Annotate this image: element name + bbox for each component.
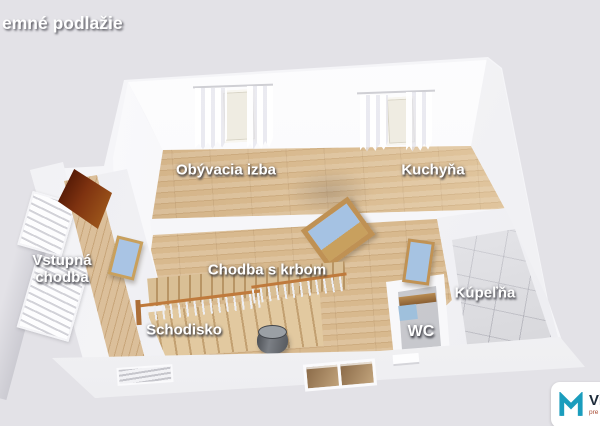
stove-top — [258, 325, 287, 339]
logo-badge[interactable]: Viz pre — [551, 382, 600, 426]
curtain-right — [247, 86, 273, 150]
logo-text: Viz pre — [589, 393, 600, 417]
m-mark-icon — [558, 392, 584, 418]
logo-name: Viz — [589, 393, 600, 408]
front-window — [337, 358, 377, 388]
wc-sink — [398, 304, 418, 321]
curtain-left — [360, 95, 388, 152]
floorplan-3d-render: Obývacia izba Kuchyňa Vstupnáchodba Chod… — [0, 0, 600, 426]
front-window-sliver — [393, 353, 420, 366]
curtain-left — [195, 88, 227, 150]
fireplace-stove — [257, 328, 288, 354]
page-title: emné podlažie — [2, 13, 123, 34]
curtain-right — [406, 92, 432, 152]
logo-subtext: pre — [589, 410, 600, 417]
